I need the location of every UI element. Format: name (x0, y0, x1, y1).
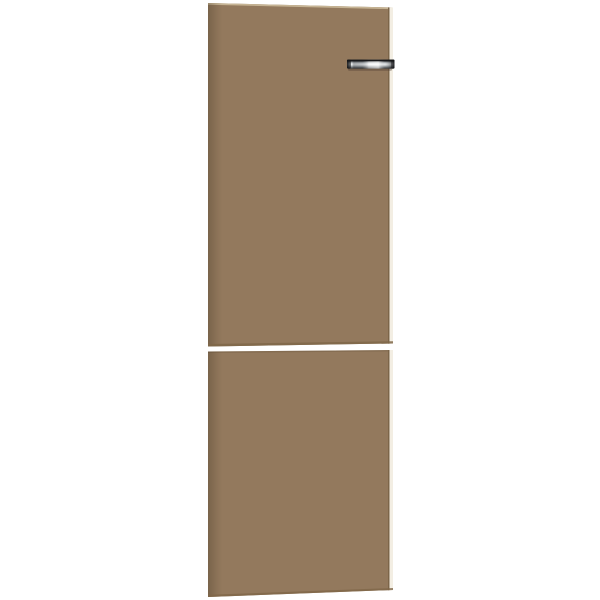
upper-door-panel (208, 3, 393, 347)
door-handle (347, 60, 395, 71)
lower-door-right-edge-line (388, 350, 390, 590)
upper-door-right-edge-highlight (390, 7, 394, 343)
lower-door-face (208, 350, 393, 597)
handle-left-end-cap (347, 60, 351, 69)
upper-door-face (208, 3, 393, 347)
upper-door-right-edge-line (388, 7, 390, 343)
lower-door-panel (208, 350, 393, 597)
handle-shadow (348, 68, 392, 70)
handle-top-edge (347, 60, 395, 62)
lower-door-right-edge-highlight (390, 350, 394, 590)
product-photo (0, 0, 600, 600)
refrigerator-door-panel-image (0, 0, 600, 600)
upper-door-left-shade (208, 3, 222, 347)
lower-door-left-shade (208, 351, 222, 597)
handle-right-end-cap (391, 60, 395, 69)
